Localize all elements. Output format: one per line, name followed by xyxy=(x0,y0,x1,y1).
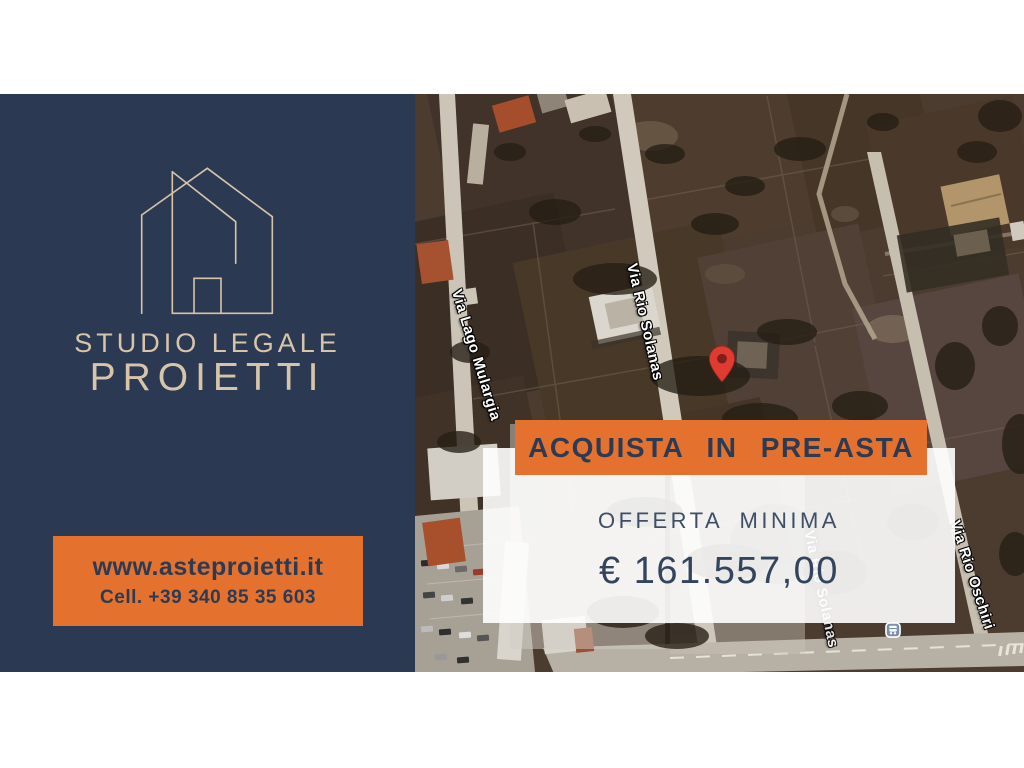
pre-asta-banner-label: ACQUISTA IN PRE-ASTA xyxy=(528,432,914,464)
website-text: www.asteproietti.it xyxy=(93,553,324,582)
flyer-page: STUDIO LEGALE PROIETTI www.asteproietti.… xyxy=(0,0,1024,768)
pre-asta-banner: ACQUISTA IN PRE-ASTA xyxy=(515,420,927,475)
satellite-map: Via Lago Mulargia Via Rio Solanas Via Ri… xyxy=(415,94,1024,672)
phone-text: Cell. +39 340 85 35 603 xyxy=(100,587,316,609)
flyer-content: STUDIO LEGALE PROIETTI www.asteproietti.… xyxy=(0,94,1024,672)
house-outline-icon xyxy=(119,150,299,330)
bus-stop-icon xyxy=(885,622,901,638)
min-offer-label: OFFERTA MINIMA xyxy=(598,508,840,534)
studio-legale-text: STUDIO LEGALE xyxy=(0,328,415,359)
proietti-text: PROIETTI xyxy=(0,356,415,400)
brand-panel: STUDIO LEGALE PROIETTI www.asteproietti.… xyxy=(0,94,415,672)
min-offer-amount: € 161.557,00 xyxy=(599,550,839,593)
contact-box: www.asteproietti.it Cell. +39 340 85 35 … xyxy=(53,536,363,626)
map-pin-icon xyxy=(709,346,735,382)
